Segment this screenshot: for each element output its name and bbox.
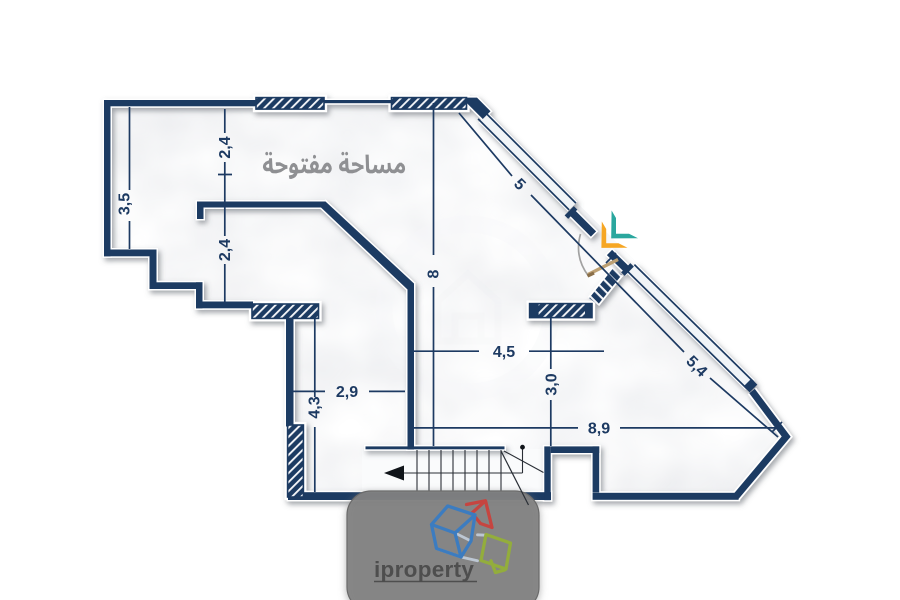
svg-text:2,9: 2,9 <box>336 384 358 401</box>
svg-text:4,3: 4,3 <box>307 396 324 418</box>
svg-text:8: 8 <box>426 269 443 278</box>
svg-text:4,5: 4,5 <box>493 344 515 361</box>
svg-text:2,4: 2,4 <box>217 136 234 158</box>
svg-text:3,0: 3,0 <box>544 373 561 395</box>
svg-text:2,4: 2,4 <box>217 239 234 261</box>
svg-text:iproperty: iproperty <box>374 557 474 582</box>
svg-text:3,5: 3,5 <box>117 193 134 215</box>
svg-text:8,9: 8,9 <box>588 421 610 438</box>
